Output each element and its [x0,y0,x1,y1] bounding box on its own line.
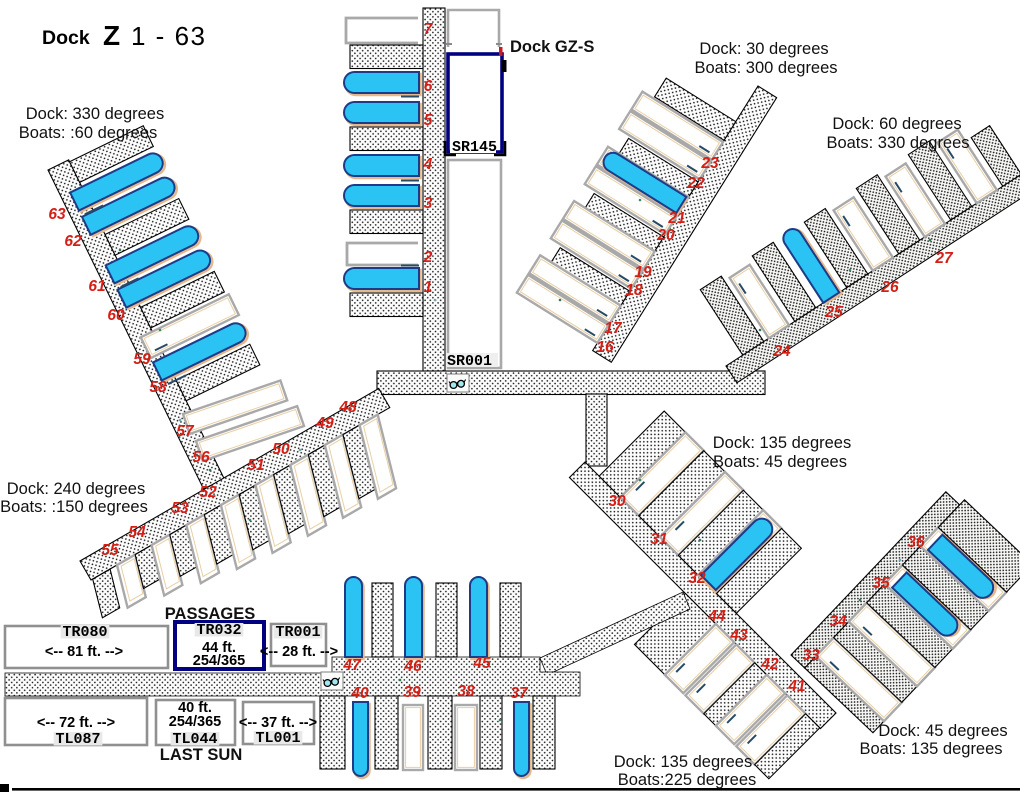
svg-text:32: 32 [688,570,706,587]
svg-text:35: 35 [872,575,890,592]
svg-text:40: 40 [350,685,369,702]
svg-text:26: 26 [880,279,899,296]
svg-text:TR001: TR001 [275,624,320,641]
svg-text:56: 56 [192,449,210,466]
svg-text:22: 22 [686,175,705,192]
svg-text:Z: Z [103,20,120,51]
svg-text:<-- 37 ft. -->: <-- 37 ft. --> [239,715,317,731]
svg-text:59: 59 [133,351,151,368]
svg-text:TR032: TR032 [196,622,241,639]
svg-text:5: 5 [424,112,433,129]
svg-text:Boats: 300 degrees: Boats: 300 degrees [694,59,837,77]
svg-text:Dock: Dock [42,27,90,49]
svg-text:53: 53 [171,500,189,517]
svg-text:38: 38 [457,683,475,700]
svg-text:16: 16 [596,339,614,356]
svg-text:7: 7 [424,21,434,38]
svg-text:19: 19 [634,264,652,281]
svg-text:18: 18 [625,282,643,299]
svg-text:24: 24 [772,343,791,360]
svg-text:54: 54 [128,524,146,541]
svg-text:Boats: :150 degrees: Boats: :150 degrees [0,498,148,516]
svg-text:1: 1 [424,279,433,296]
svg-text:3: 3 [424,195,433,212]
svg-text:TR080: TR080 [62,624,107,641]
svg-text:4: 4 [423,156,433,173]
svg-text:<-- 81 ft. -->: <-- 81 ft. --> [45,644,123,660]
svg-text:50: 50 [272,441,290,458]
svg-text:39: 39 [403,684,421,701]
svg-text:61: 61 [88,278,105,295]
svg-text:2: 2 [423,249,433,266]
svg-text:LAST SUN: LAST SUN [160,746,243,764]
svg-text:48: 48 [338,399,357,416]
svg-text:Dock: 240 degrees: Dock: 240 degrees [7,480,146,498]
svg-text:30: 30 [608,493,626,510]
svg-text:<-- 28 ft. -->: <-- 28 ft. --> [260,644,338,660]
svg-text:TL001: TL001 [255,730,300,747]
svg-text:51: 51 [247,457,264,474]
svg-text:25: 25 [824,304,843,321]
svg-text:27: 27 [934,250,954,267]
svg-text:31: 31 [650,531,667,548]
svg-text:43: 43 [729,627,748,644]
svg-text:63: 63 [48,206,66,223]
svg-text:41: 41 [787,678,805,695]
svg-text:57: 57 [176,423,195,440]
svg-text:PASSAGES: PASSAGES [165,605,255,623]
svg-text:33: 33 [802,647,820,664]
svg-text:17: 17 [604,320,623,337]
svg-text:Boats: :60 degrees: Boats: :60 degrees [19,124,158,142]
svg-text:62: 62 [64,233,82,250]
svg-text:49: 49 [315,415,334,432]
svg-text:SR001: SR001 [447,353,492,370]
svg-text:Dock: 135 degrees: Dock: 135 degrees [614,753,753,771]
svg-text:Dock: 135 degrees: Dock: 135 degrees [713,434,852,452]
svg-text:37: 37 [510,685,529,702]
svg-text:254/365: 254/365 [169,714,221,730]
svg-text:Boats: 45 degrees: Boats: 45 degrees [713,453,847,471]
svg-text:58: 58 [149,379,167,396]
svg-text:60: 60 [107,307,125,324]
svg-text:21: 21 [667,210,685,227]
svg-text:44: 44 [707,608,726,625]
svg-text:6: 6 [424,78,433,95]
svg-text:46: 46 [403,658,422,675]
svg-text:Dock: 60 degrees: Dock: 60 degrees [832,115,961,133]
svg-text:Dock GZ-S: Dock GZ-S [510,38,594,56]
svg-text:52: 52 [199,484,217,501]
svg-text:254/365: 254/365 [193,653,245,669]
svg-text:1 - 63: 1 - 63 [131,21,207,51]
svg-text:SR145: SR145 [452,139,497,156]
svg-text:Boats: 330 degrees: Boats: 330 degrees [826,134,969,152]
svg-text:36: 36 [907,534,925,551]
svg-text:42: 42 [760,656,779,673]
svg-text:Dock: 45 degrees: Dock: 45 degrees [878,722,1007,740]
svg-text:55: 55 [101,542,119,559]
svg-text:TL087: TL087 [55,731,100,748]
svg-text:Boats: 135 degrees: Boats: 135 degrees [859,740,1002,758]
svg-text:45: 45 [472,655,491,672]
svg-text:47: 47 [342,657,362,674]
svg-text:34: 34 [829,613,847,630]
svg-text:20: 20 [656,227,675,244]
svg-text:Boats:225 degrees: Boats:225 degrees [618,771,757,789]
svg-text:<-- 72 ft. -->: <-- 72 ft. --> [37,715,115,731]
svg-text:Dock: 330 degrees: Dock: 330 degrees [26,105,165,123]
svg-text:Dock: 30 degrees: Dock: 30 degrees [699,40,828,58]
svg-text:23: 23 [700,155,719,172]
